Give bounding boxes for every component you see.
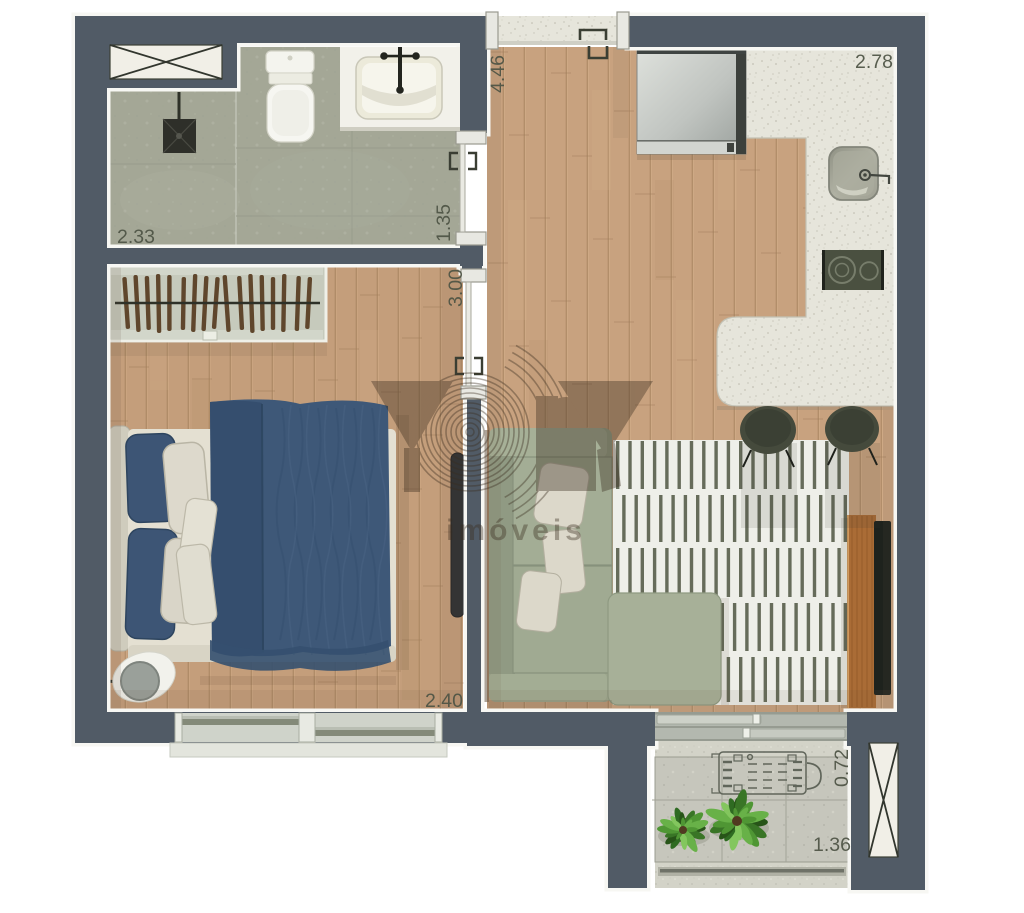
svg-text:2.40: 2.40 bbox=[425, 690, 463, 712]
svg-text:1.35: 1.35 bbox=[433, 204, 455, 242]
svg-text:3.00: 3.00 bbox=[445, 269, 467, 307]
svg-text:2.33: 2.33 bbox=[117, 226, 155, 248]
svg-text:4.46: 4.46 bbox=[487, 55, 509, 93]
svg-text:2.78: 2.78 bbox=[855, 51, 893, 73]
svg-text:imóveis: imóveis bbox=[446, 514, 586, 547]
svg-text:0.72: 0.72 bbox=[831, 749, 853, 787]
svg-text:1.36: 1.36 bbox=[813, 834, 851, 856]
